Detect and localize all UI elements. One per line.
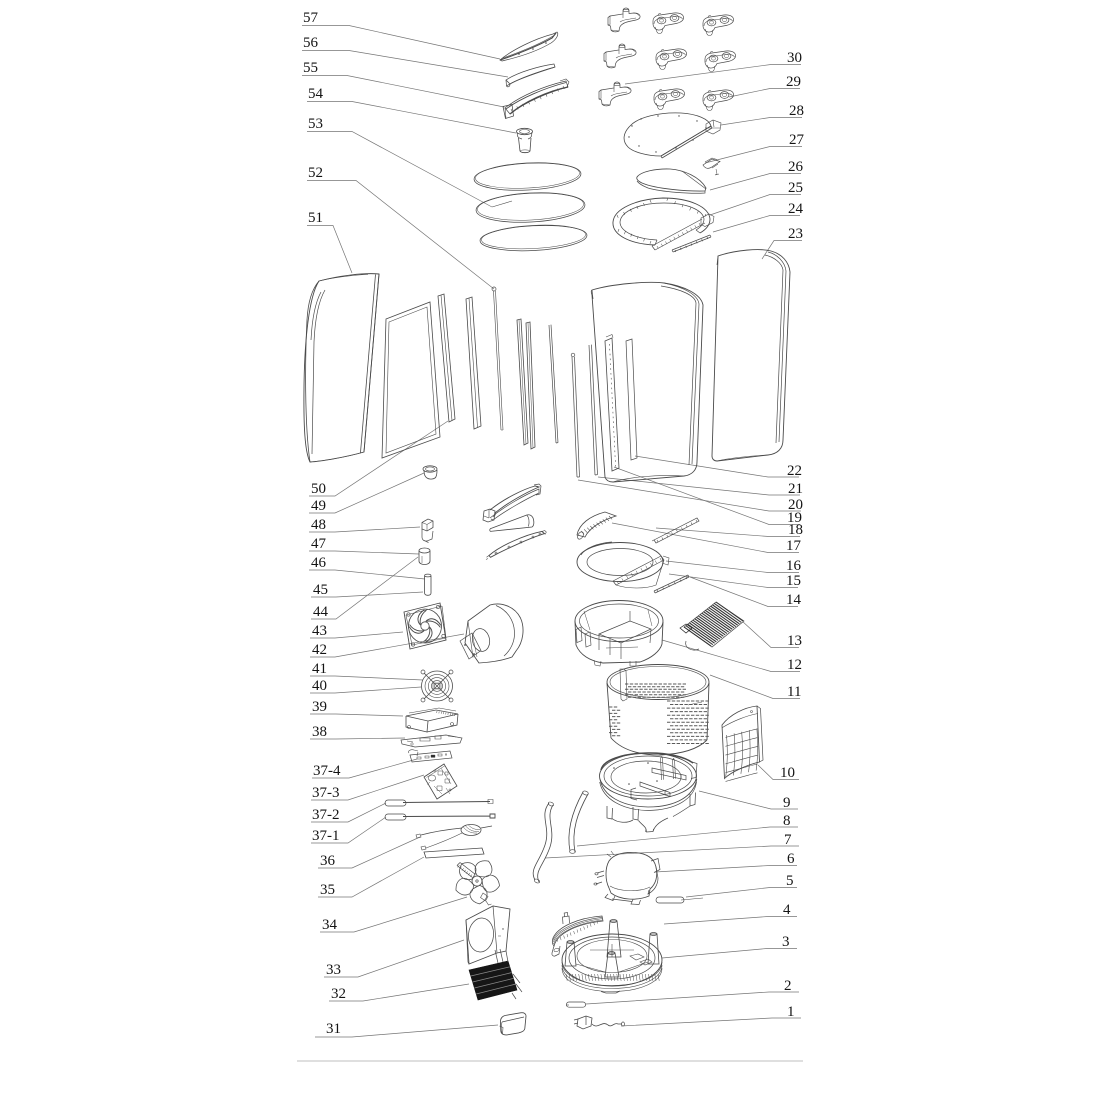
svg-text:37-1: 37-1 [312, 828, 340, 844]
svg-text:1: 1 [787, 1004, 795, 1020]
svg-text:40: 40 [312, 678, 327, 694]
svg-text:23: 23 [788, 226, 803, 242]
svg-text:9: 9 [783, 795, 791, 811]
svg-text:33: 33 [326, 962, 341, 978]
svg-text:29: 29 [786, 74, 801, 90]
svg-text:57: 57 [303, 10, 319, 26]
svg-text:34: 34 [322, 917, 338, 933]
svg-text:37-4: 37-4 [313, 763, 341, 779]
svg-text:30: 30 [787, 50, 802, 66]
svg-text:16: 16 [786, 558, 802, 574]
svg-text:36: 36 [320, 853, 336, 869]
svg-text:51: 51 [308, 210, 323, 226]
svg-text:45: 45 [313, 582, 328, 598]
svg-text:12: 12 [787, 657, 802, 673]
svg-text:27: 27 [789, 132, 805, 148]
svg-text:41: 41 [312, 661, 327, 677]
svg-text:15: 15 [786, 573, 801, 589]
svg-text:17: 17 [786, 538, 802, 554]
svg-text:28: 28 [789, 103, 804, 119]
svg-text:44: 44 [313, 604, 329, 620]
svg-text:55: 55 [303, 60, 318, 76]
svg-text:53: 53 [308, 116, 323, 132]
svg-text:37-2: 37-2 [312, 807, 340, 823]
svg-text:37-3: 37-3 [312, 785, 340, 801]
svg-text:39: 39 [312, 699, 327, 715]
svg-text:32: 32 [331, 986, 346, 1002]
svg-text:56: 56 [303, 35, 319, 51]
svg-text:24: 24 [788, 201, 804, 217]
svg-text:11: 11 [787, 684, 801, 700]
svg-text:3: 3 [782, 934, 790, 950]
svg-text:13: 13 [787, 633, 802, 649]
svg-text:8: 8 [783, 813, 791, 829]
svg-text:46: 46 [311, 555, 327, 571]
svg-text:31: 31 [326, 1021, 341, 1037]
svg-text:14: 14 [786, 592, 802, 608]
svg-text:42: 42 [312, 642, 327, 658]
svg-text:26: 26 [788, 159, 804, 175]
svg-text:18: 18 [788, 522, 803, 538]
svg-text:38: 38 [312, 724, 327, 740]
svg-text:10: 10 [780, 765, 795, 781]
svg-text:22: 22 [787, 463, 802, 479]
svg-text:50: 50 [311, 481, 326, 497]
svg-text:52: 52 [308, 165, 323, 181]
svg-text:25: 25 [788, 180, 803, 196]
svg-text:5: 5 [786, 873, 794, 889]
svg-text:21: 21 [788, 481, 803, 497]
svg-text:7: 7 [784, 832, 792, 848]
svg-text:6: 6 [787, 851, 795, 867]
svg-text:47: 47 [311, 536, 327, 552]
svg-text:48: 48 [311, 517, 326, 533]
svg-text:2: 2 [784, 978, 792, 994]
svg-text:49: 49 [311, 498, 326, 514]
svg-text:35: 35 [320, 882, 335, 898]
svg-text:4: 4 [783, 902, 791, 918]
svg-text:43: 43 [312, 623, 327, 639]
svg-text:54: 54 [308, 86, 324, 102]
